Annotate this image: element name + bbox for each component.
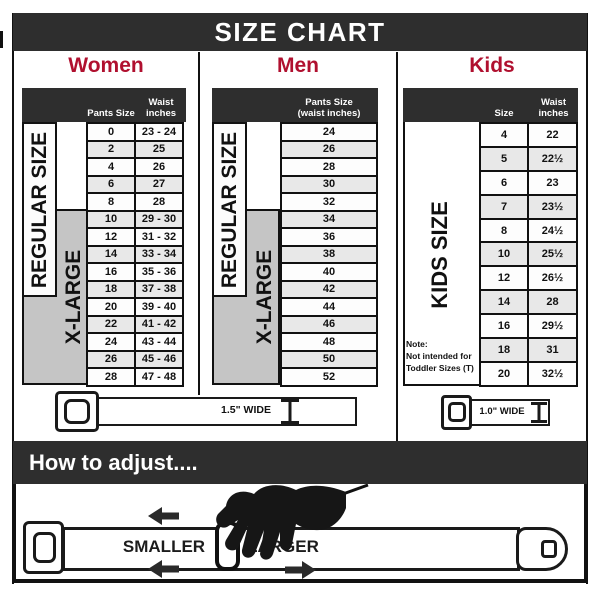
women-col-waist-header: Waist inches bbox=[136, 88, 186, 122]
women-regular-box: REGULAR SIZE bbox=[22, 122, 57, 297]
measure-stem bbox=[538, 405, 541, 420]
header-spacer bbox=[22, 88, 86, 122]
kids-note-line1: Note: bbox=[406, 339, 480, 350]
table-cell: 6 bbox=[479, 170, 529, 196]
measure-stem bbox=[289, 402, 292, 421]
table-cell: 52 bbox=[280, 367, 378, 387]
table-cell: 23 bbox=[527, 170, 578, 196]
kids-note-line3: Toddler Sizes (T) bbox=[406, 363, 480, 374]
men-column-title: Men bbox=[199, 54, 397, 80]
table-cell: 10 bbox=[479, 241, 529, 267]
size-chart-page: SIZE CHART Women Men Kids Pants Size Wai… bbox=[0, 0, 600, 600]
kids-table-header: Size Waist inches bbox=[403, 88, 578, 122]
men-regular-box: REGULAR SIZE bbox=[212, 122, 247, 297]
men-table-header: Pants Size (waist inches) bbox=[212, 88, 378, 122]
table-cell: 28 bbox=[86, 367, 136, 387]
women-column-title: Women bbox=[13, 54, 199, 80]
page-title: SIZE CHART bbox=[13, 13, 587, 51]
table-cell: 5 bbox=[479, 146, 529, 172]
kids-belt-buckle-inner bbox=[448, 402, 466, 422]
women-xlarge-zone: X-LARGE bbox=[57, 211, 90, 383]
adult-width-measure-icon bbox=[281, 399, 299, 424]
table-cell: 14 bbox=[479, 289, 529, 315]
men-xlarge-zone: X-LARGE bbox=[247, 211, 282, 383]
header-spacer bbox=[212, 88, 280, 122]
howto-belt-tip-hole bbox=[541, 540, 557, 558]
table-row: 422 bbox=[405, 122, 578, 148]
women-regular-label: REGULAR SIZE bbox=[28, 131, 52, 287]
kids-column-title: Kids bbox=[397, 54, 587, 80]
women-col-pants-header: Pants Size bbox=[86, 88, 136, 122]
table-cell: 8 bbox=[479, 218, 529, 244]
men-col-header-line1: Pants Size bbox=[305, 98, 353, 109]
table-cell: 7 bbox=[479, 194, 529, 220]
table-cell: 16 bbox=[479, 313, 529, 339]
howto-belt-buckle-inner bbox=[33, 532, 56, 563]
adult-belt-width-label: 1.5" WIDE bbox=[213, 404, 279, 416]
kids-width-measure-icon bbox=[531, 402, 547, 423]
hand-pulling-icon bbox=[196, 484, 416, 584]
women-xlarge-label: X-LARGE bbox=[62, 250, 86, 345]
kids-note-line2: Not intended for bbox=[406, 351, 480, 362]
kids-col-waist-header: Waist inches bbox=[529, 88, 578, 122]
kids-size-label: KIDS SIZE bbox=[427, 201, 453, 309]
table-cell: 47 - 48 bbox=[134, 367, 184, 387]
row-label-spacer bbox=[405, 122, 479, 148]
arrow-left-icon bbox=[148, 560, 180, 578]
how-to-adjust-title: How to adjust.... bbox=[13, 441, 587, 484]
women-table-header: Pants Size Waist inches bbox=[22, 88, 186, 122]
table-cell: 4 bbox=[479, 122, 529, 148]
men-xlarge-label: X-LARGE bbox=[253, 250, 277, 345]
table-cell: 22 bbox=[527, 122, 578, 148]
table-cell: 23½ bbox=[527, 194, 578, 220]
table-cell: 12 bbox=[479, 265, 529, 291]
men-col-header: Pants Size (waist inches) bbox=[280, 88, 378, 122]
adult-belt-buckle-inner bbox=[64, 399, 90, 424]
table-cell: 29½ bbox=[527, 313, 578, 339]
header-spacer bbox=[403, 88, 479, 122]
table-cell: 25½ bbox=[527, 241, 578, 267]
kids-belt-width-label: 1.0" WIDE bbox=[477, 406, 527, 417]
divider-men-kids bbox=[396, 52, 398, 442]
arrow-left-icon bbox=[148, 507, 180, 525]
table-cell: 22½ bbox=[527, 146, 578, 172]
table-cell: 32½ bbox=[527, 361, 578, 387]
divider-women-men bbox=[198, 52, 200, 395]
table-cell: 18 bbox=[479, 337, 529, 363]
table-cell: 31 bbox=[527, 337, 578, 363]
table-cell: 26½ bbox=[527, 265, 578, 291]
kids-size-zone: KIDS SIZE bbox=[408, 160, 472, 350]
left-edge-mark bbox=[0, 31, 3, 48]
table-cell: 24½ bbox=[527, 218, 578, 244]
kids-col-size-header: Size bbox=[479, 88, 529, 122]
table-cell: 20 bbox=[479, 361, 529, 387]
men-regular-label: REGULAR SIZE bbox=[218, 131, 242, 287]
men-col-header-line2: (waist inches) bbox=[298, 109, 361, 120]
hand-silhouette bbox=[216, 485, 346, 560]
table-cell: 28 bbox=[527, 289, 578, 315]
